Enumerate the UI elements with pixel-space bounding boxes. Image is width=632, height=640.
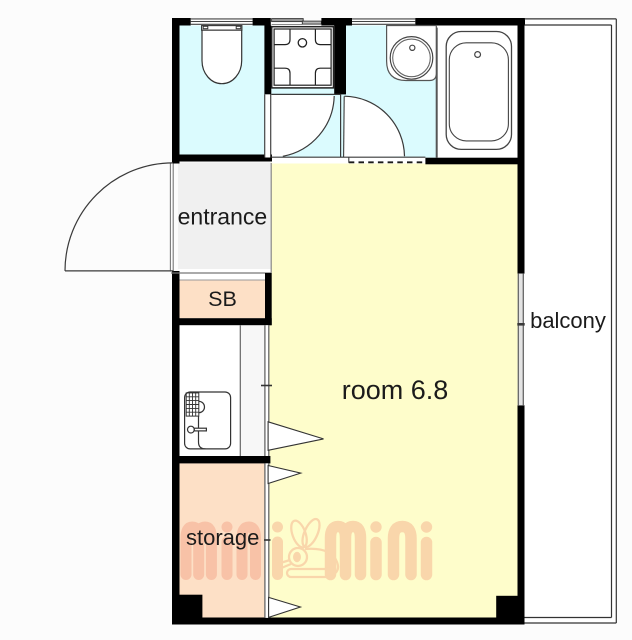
svg-text:storage: storage (186, 525, 259, 550)
svg-text:SB: SB (208, 287, 237, 311)
svg-text:room 6.8: room 6.8 (342, 375, 449, 405)
svg-text:entrance: entrance (178, 203, 268, 229)
svg-text:balcony: balcony (530, 308, 606, 333)
